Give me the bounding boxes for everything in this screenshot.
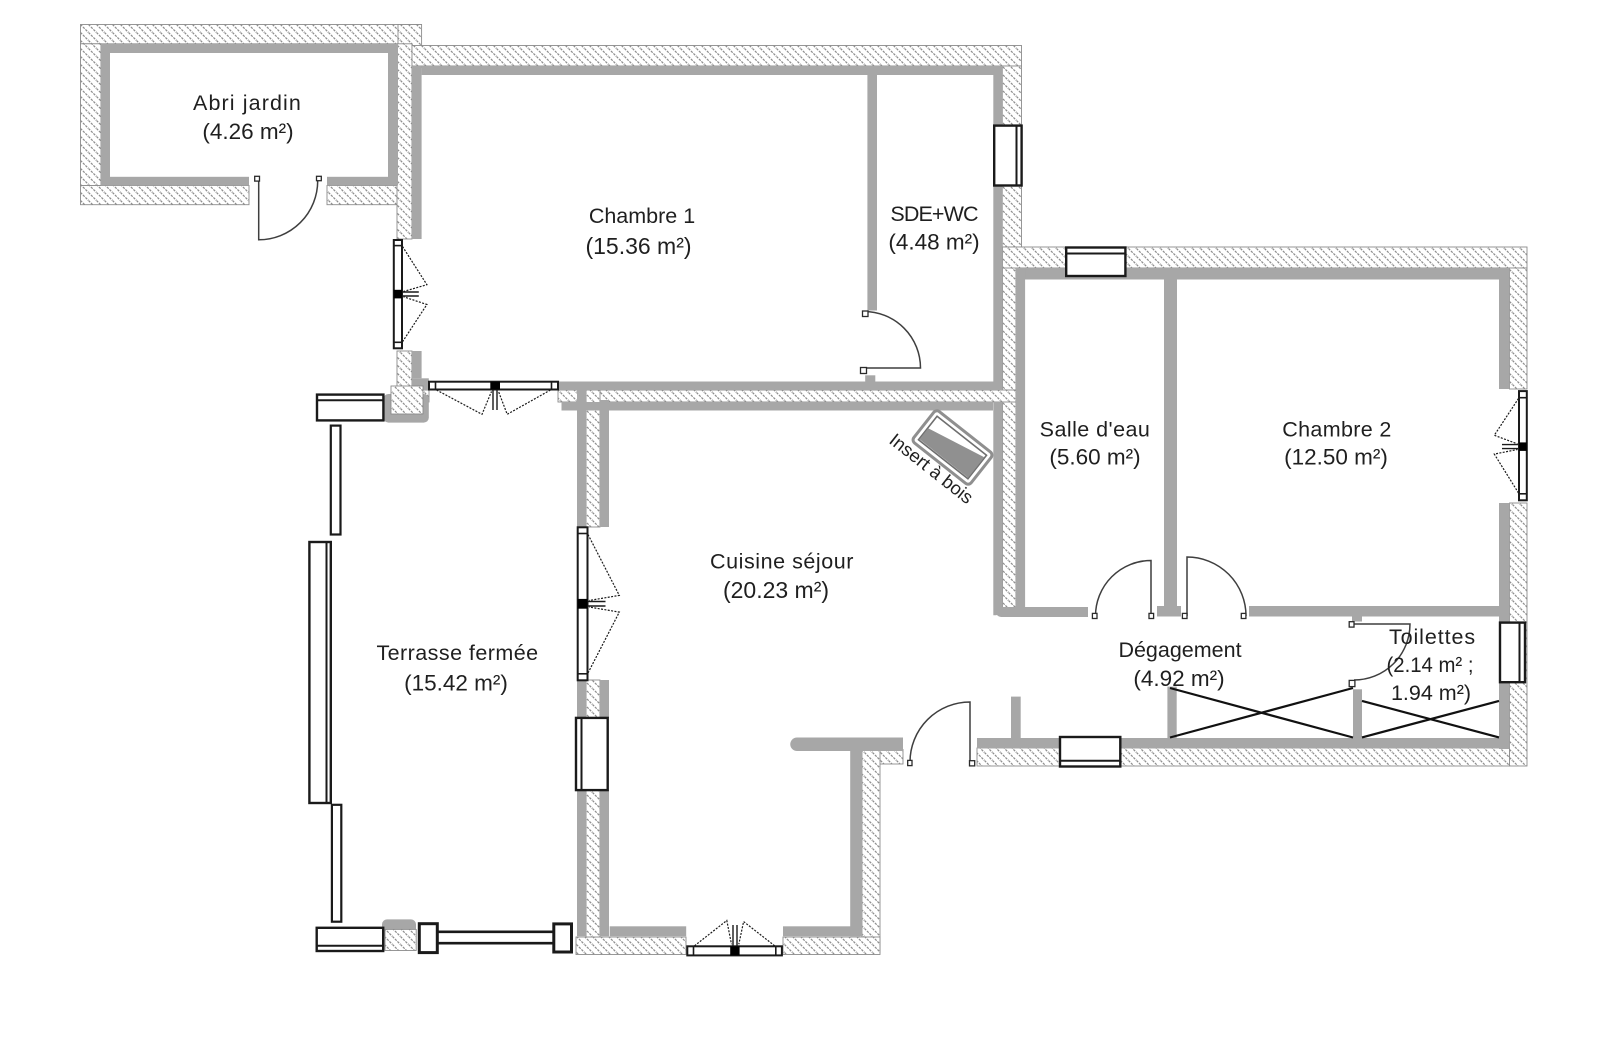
svg-text:(4.92 m²): (4.92 m²) [1133,666,1224,691]
svg-text:Salle d'eau: Salle d'eau [1040,418,1151,442]
svg-text:Toilettes: Toilettes [1389,625,1476,649]
svg-text:Chambre 2: Chambre 2 [1282,418,1392,442]
svg-text:(20.23 m²): (20.23 m²) [723,577,829,603]
svg-text:(4.48 m²): (4.48 m²) [888,230,979,255]
svg-text:Chambre 1: Chambre 1 [589,204,695,228]
svg-text:Cuisine séjour: Cuisine séjour [710,549,854,573]
svg-text:Terrasse fermée: Terrasse fermée [376,641,538,665]
svg-text:(2.14 m² ;: (2.14 m² ; [1387,653,1474,677]
svg-text:(12.50 m²): (12.50 m²) [1284,445,1388,470]
svg-text:(4.26 m²): (4.26 m²) [202,119,293,144]
svg-text:(15.36 m²): (15.36 m²) [585,233,691,259]
svg-text:1.94 m²): 1.94 m²) [1391,681,1471,705]
svg-text:Abri jardin: Abri jardin [193,91,302,115]
svg-text:(5.60 m²): (5.60 m²) [1049,445,1140,470]
svg-text:(15.42 m²): (15.42 m²) [404,671,508,696]
svg-text:Dégagement: Dégagement [1118,638,1241,662]
svg-text:SDE+WC: SDE+WC [890,202,978,226]
